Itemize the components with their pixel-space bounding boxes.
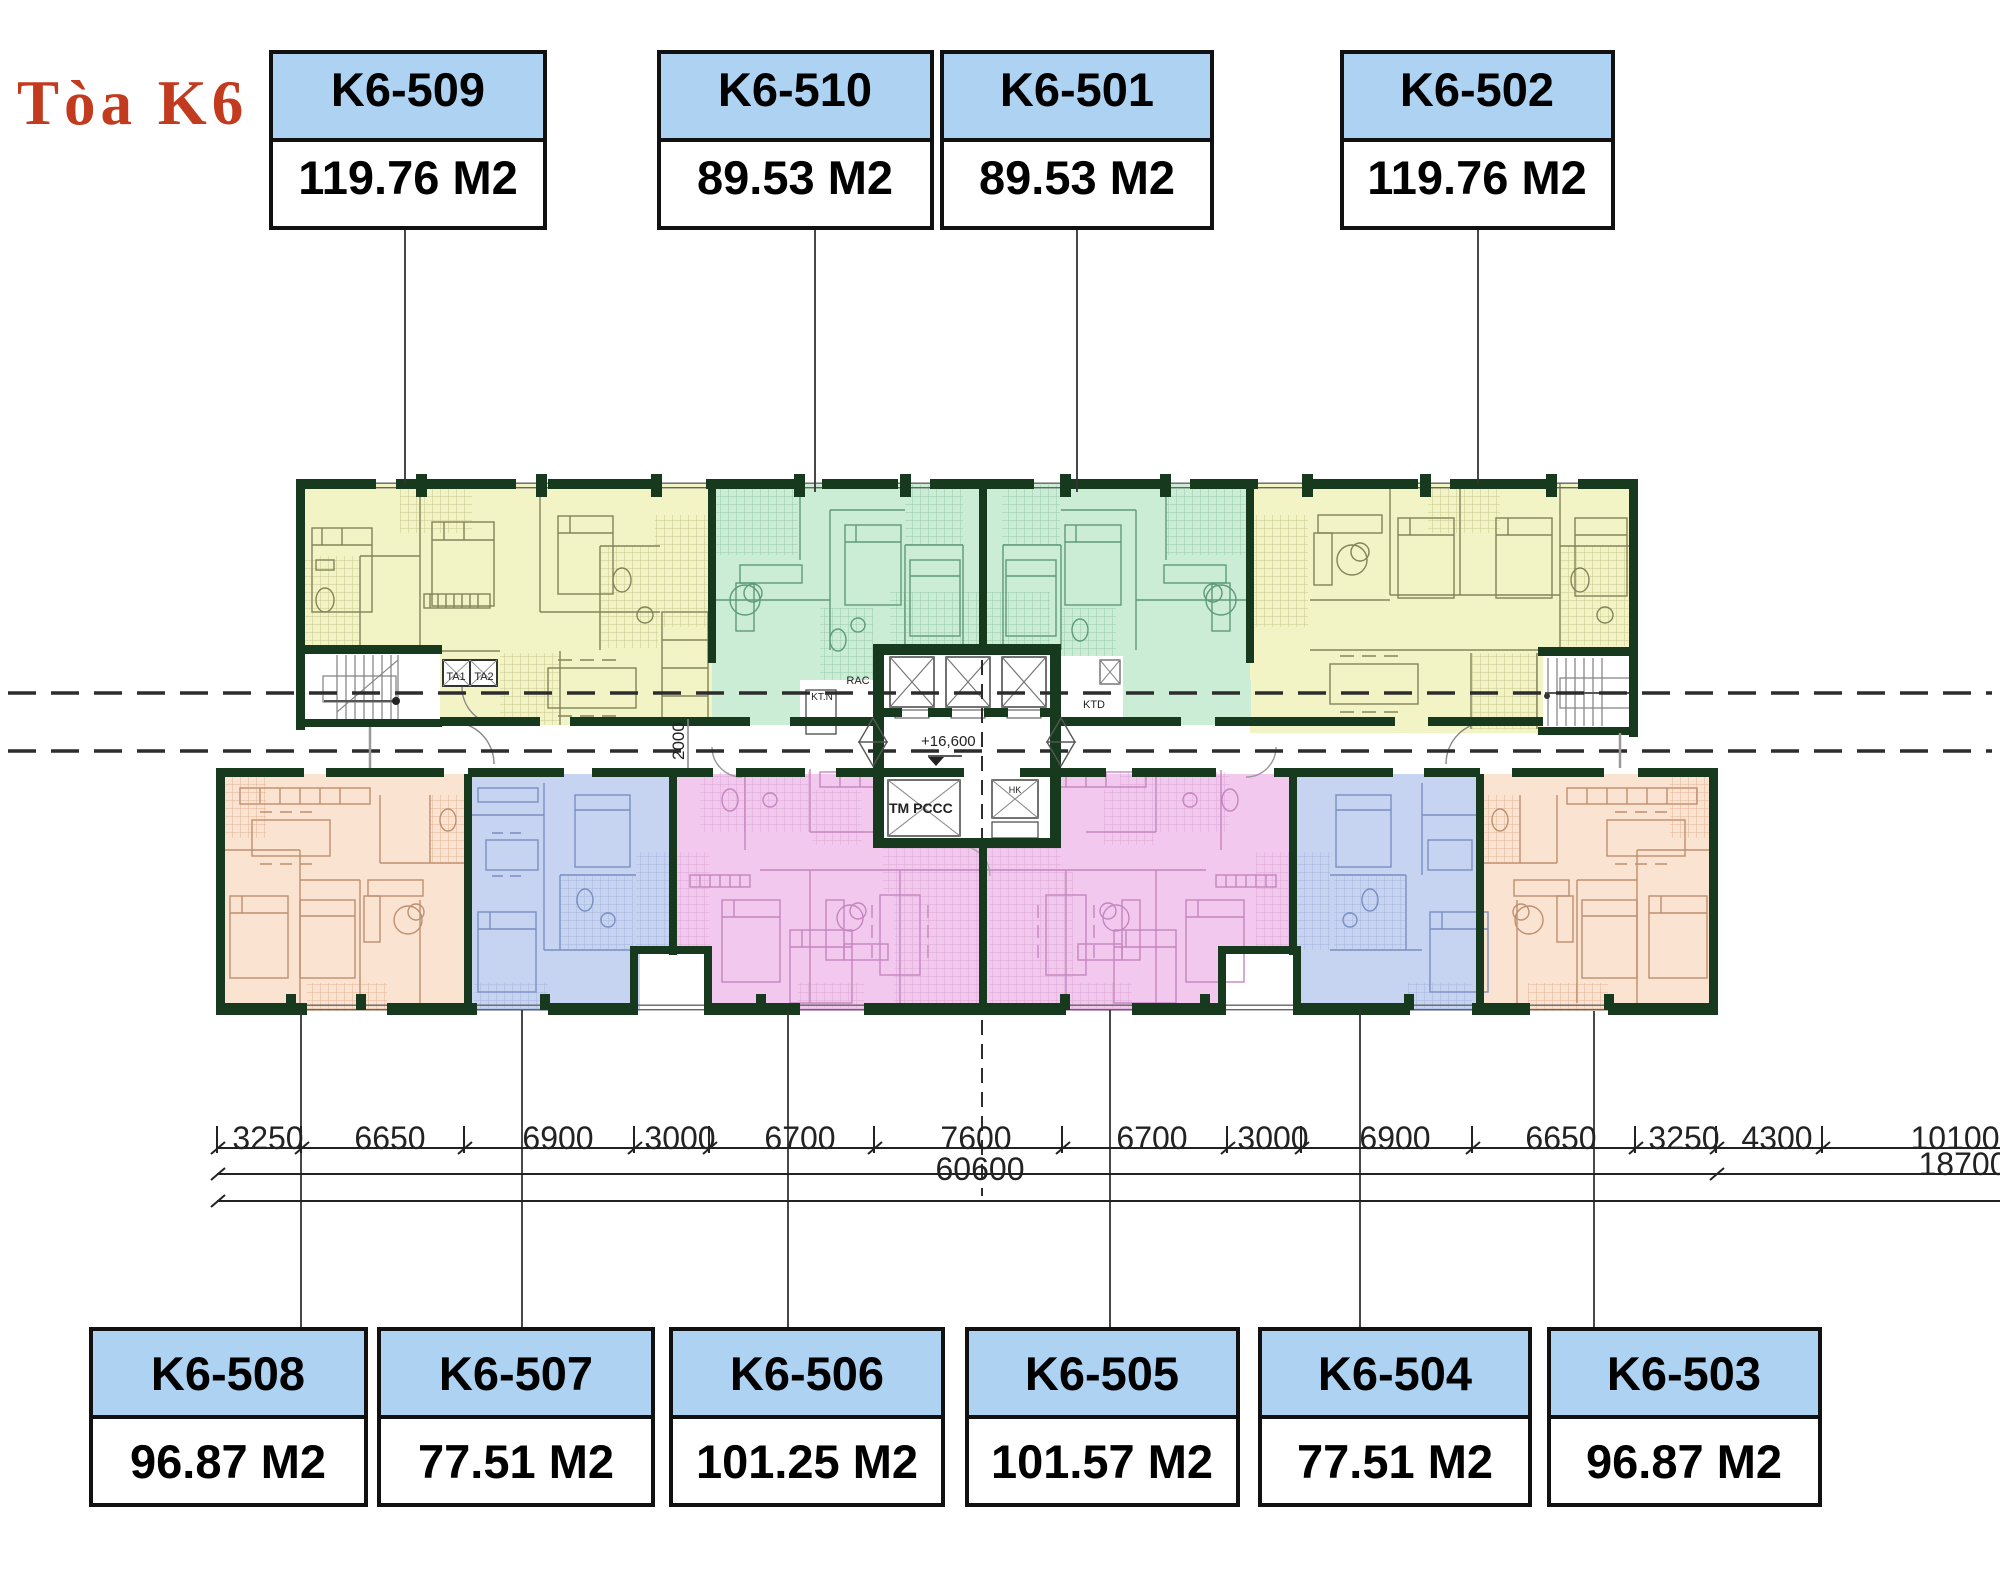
svg-text:101.57 M2: 101.57 M2 (991, 1435, 1213, 1488)
svg-text:96.87 M2: 96.87 M2 (1586, 1435, 1782, 1488)
svg-text:18700: 18700 (1919, 1146, 2000, 1182)
svg-text:K6-510: K6-510 (718, 63, 872, 116)
svg-text:TA1: TA1 (446, 671, 465, 683)
svg-text:6650: 6650 (354, 1120, 425, 1156)
svg-text:60600: 60600 (936, 1151, 1025, 1187)
svg-text:4300: 4300 (1741, 1120, 1812, 1156)
svg-text:6700: 6700 (1116, 1120, 1187, 1156)
svg-text:K6-509: K6-509 (331, 63, 485, 116)
svg-text:K6-502: K6-502 (1400, 63, 1554, 116)
svg-text:Tòa K6: Tòa K6 (17, 68, 248, 138)
svg-text:K6-501: K6-501 (1000, 63, 1154, 116)
svg-text:6900: 6900 (522, 1120, 593, 1156)
svg-text:K6-507: K6-507 (439, 1347, 593, 1400)
svg-text:TM PCCC: TM PCCC (889, 800, 953, 816)
svg-text:77.51 M2: 77.51 M2 (1297, 1435, 1493, 1488)
svg-text:3250: 3250 (1648, 1120, 1719, 1156)
svg-text:119.76 M2: 119.76 M2 (298, 151, 518, 204)
svg-text:K6-506: K6-506 (730, 1347, 884, 1400)
svg-text:89.53 M2: 89.53 M2 (979, 151, 1175, 204)
svg-text:+16,600: +16,600 (921, 733, 976, 750)
svg-text:3250: 3250 (232, 1120, 303, 1156)
svg-text:6700: 6700 (764, 1120, 835, 1156)
svg-text:119.76 M2: 119.76 M2 (1367, 151, 1587, 204)
svg-text:K6-503: K6-503 (1607, 1347, 1761, 1400)
svg-text:HK: HK (1009, 785, 1022, 795)
svg-text:2000: 2000 (669, 722, 688, 760)
svg-text:96.87 M2: 96.87 M2 (130, 1435, 326, 1488)
svg-text:3000: 3000 (1237, 1120, 1308, 1156)
svg-text:3000: 3000 (644, 1120, 715, 1156)
svg-text:77.51 M2: 77.51 M2 (418, 1435, 614, 1488)
svg-text:K6-505: K6-505 (1025, 1347, 1179, 1400)
svg-text:K6-504: K6-504 (1318, 1347, 1472, 1400)
svg-text:KTD: KTD (1083, 699, 1105, 711)
svg-text:6900: 6900 (1359, 1120, 1430, 1156)
svg-text:89.53 M2: 89.53 M2 (697, 151, 893, 204)
svg-text:RAC: RAC (846, 675, 869, 687)
svg-text:K6-508: K6-508 (151, 1347, 305, 1400)
svg-text:101.25 M2: 101.25 M2 (696, 1435, 918, 1488)
svg-text:TA2: TA2 (474, 671, 493, 683)
svg-text:6650: 6650 (1525, 1120, 1596, 1156)
